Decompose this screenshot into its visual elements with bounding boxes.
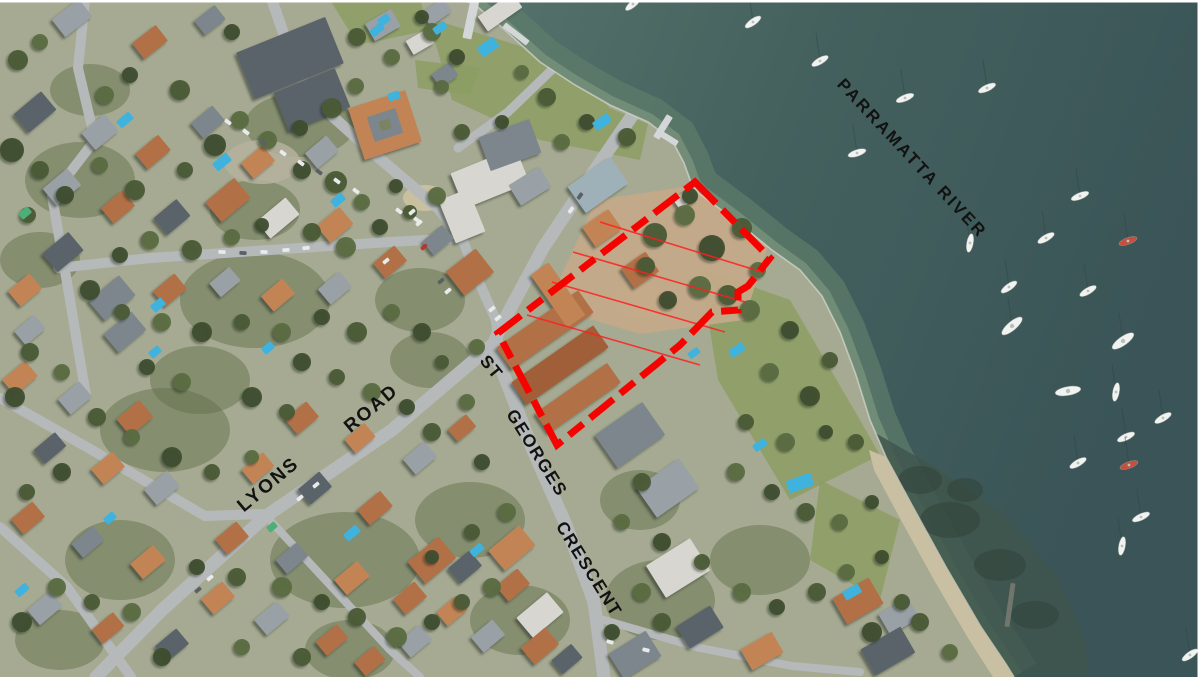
- car: [302, 246, 310, 250]
- tree: [124, 429, 140, 445]
- tree: [303, 223, 321, 241]
- tree: [19, 484, 35, 500]
- tree: [554, 134, 570, 150]
- tree: [234, 314, 250, 330]
- tree: [839, 564, 855, 580]
- tree: [848, 434, 864, 450]
- tree: [428, 187, 446, 205]
- tree: [425, 550, 439, 564]
- tree: [259, 131, 277, 149]
- tree: [314, 594, 330, 610]
- tree: [141, 231, 159, 249]
- tree: [347, 322, 367, 342]
- tree: [5, 387, 25, 407]
- tree: [228, 568, 246, 586]
- tree: [808, 583, 826, 601]
- tree: [643, 223, 667, 247]
- tree: [875, 550, 889, 564]
- tree: [182, 240, 202, 260]
- tree: [348, 28, 366, 46]
- tree: [538, 88, 556, 106]
- tree: [123, 603, 141, 621]
- car: [260, 250, 267, 254]
- tree: [579, 114, 595, 130]
- tree: [48, 578, 66, 596]
- tree: [56, 186, 74, 204]
- tree: [911, 613, 929, 631]
- tree: [21, 343, 39, 361]
- tree: [819, 425, 833, 439]
- tree: [423, 423, 441, 441]
- tree: [189, 559, 205, 575]
- tree: [204, 134, 226, 156]
- tree: [384, 49, 400, 65]
- tree: [413, 323, 431, 341]
- tree: [322, 98, 342, 118]
- tree: [204, 464, 220, 480]
- tree: [273, 323, 291, 341]
- tree: [84, 594, 100, 610]
- tree: [279, 404, 295, 420]
- tree: [495, 115, 509, 129]
- tree: [862, 622, 882, 642]
- tree: [231, 111, 249, 129]
- tree: [384, 304, 400, 320]
- tree: [88, 408, 106, 426]
- tree: [112, 247, 128, 263]
- tree: [242, 387, 262, 407]
- aerial-map: PARRAMATTA RIVERLYONSROADSTGEORGESCRESCE…: [0, 0, 1200, 677]
- tree: [387, 627, 407, 647]
- tree: [637, 257, 655, 275]
- tree: [92, 157, 108, 173]
- tree: [234, 639, 250, 655]
- tree: [659, 291, 677, 309]
- tree: [139, 359, 155, 375]
- tree: [769, 599, 785, 615]
- tree: [31, 161, 49, 179]
- car: [239, 251, 246, 255]
- tree: [832, 514, 848, 530]
- tree: [454, 594, 470, 610]
- tree: [740, 300, 760, 320]
- car: [218, 250, 225, 254]
- tree: [942, 644, 958, 660]
- tree: [633, 583, 651, 601]
- tree: [0, 138, 24, 162]
- tree: [694, 554, 710, 570]
- tree: [399, 399, 415, 415]
- tree: [114, 304, 130, 320]
- tree: [618, 128, 636, 146]
- tree: [738, 414, 754, 430]
- tree: [822, 352, 838, 368]
- tree: [32, 34, 48, 50]
- tree: [797, 503, 815, 521]
- tree: [354, 194, 370, 210]
- tree: [733, 583, 751, 601]
- tree: [293, 648, 311, 666]
- tree: [153, 313, 171, 331]
- tree: [389, 179, 403, 193]
- tree: [777, 433, 795, 451]
- tree: [348, 78, 364, 94]
- tree: [255, 218, 269, 232]
- tree: [53, 463, 71, 481]
- tree: [153, 648, 171, 666]
- tree: [8, 50, 28, 70]
- tree: [224, 24, 240, 40]
- tree: [464, 524, 480, 540]
- tree: [675, 205, 695, 225]
- tree: [469, 339, 485, 355]
- tree: [761, 363, 779, 381]
- tree: [498, 503, 516, 521]
- tree: [80, 280, 100, 300]
- tree: [764, 484, 780, 500]
- tree: [372, 219, 388, 235]
- tree: [272, 577, 292, 597]
- tree: [653, 533, 671, 551]
- tree: [125, 180, 145, 200]
- tree: [682, 188, 698, 204]
- tree: [424, 614, 440, 630]
- tree: [459, 394, 475, 410]
- tree: [177, 162, 193, 178]
- tree: [474, 454, 490, 470]
- tree: [122, 67, 138, 83]
- tree: [800, 386, 820, 406]
- tree: [781, 321, 799, 339]
- tree: [329, 369, 345, 385]
- tree: [454, 124, 470, 140]
- tree: [162, 447, 182, 467]
- tree: [894, 594, 910, 610]
- tree: [865, 495, 879, 509]
- tree: [173, 373, 191, 391]
- tree: [653, 613, 671, 631]
- tree: [224, 229, 240, 245]
- tree: [348, 608, 366, 626]
- tree: [614, 514, 630, 530]
- tree: [245, 450, 259, 464]
- tree: [293, 353, 311, 371]
- tree: [415, 10, 429, 24]
- tree: [54, 364, 70, 380]
- tree: [314, 309, 330, 325]
- tree: [483, 578, 501, 596]
- tree: [515, 65, 529, 79]
- tree: [633, 473, 651, 491]
- tree: [192, 322, 212, 342]
- tree: [292, 120, 308, 136]
- tree: [435, 355, 449, 369]
- tree: [449, 49, 465, 65]
- tree: [435, 80, 449, 94]
- tree: [336, 237, 356, 257]
- tree: [12, 612, 32, 632]
- figure-edge-top: [0, 0, 1200, 3]
- aerial-map-figure: PARRAMATTA RIVERLYONSROADSTGEORGESCRESCE…: [0, 0, 1200, 677]
- tree: [727, 463, 745, 481]
- tree: [170, 80, 190, 100]
- tree: [604, 624, 620, 640]
- car: [282, 248, 289, 252]
- tree: [96, 86, 114, 104]
